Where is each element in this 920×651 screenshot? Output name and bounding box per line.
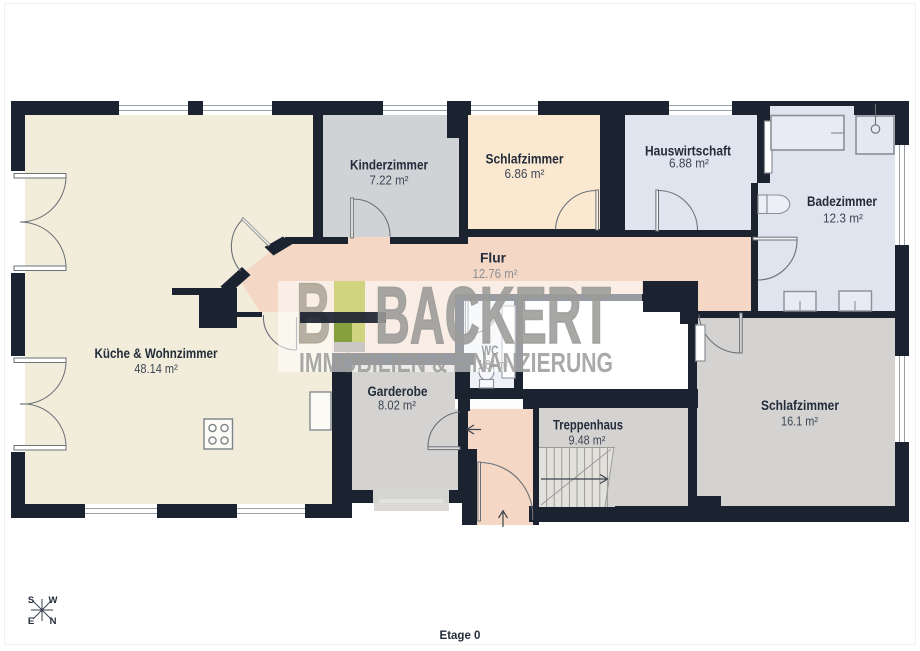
svg-text:IMMOBILIEN & FINANZIERUNG: IMMOBILIEN & FINANZIERUNG [299,347,613,378]
svg-text:Etage 0: Etage 0 [440,630,481,642]
svg-text:Flur: Flur [480,251,507,266]
svg-text:Badezimmer: Badezimmer [807,194,878,209]
svg-text:N: N [50,616,57,627]
svg-text:9.48 m²: 9.48 m² [569,434,606,448]
svg-text:6.86 m²: 6.86 m² [505,167,545,181]
svg-text:6.88 m²: 6.88 m² [669,157,709,171]
svg-text:16.1 m²: 16.1 m² [781,415,818,429]
svg-text:Schlafzimmer: Schlafzimmer [486,152,565,167]
svg-text:48.14 m²: 48.14 m² [134,362,178,376]
svg-text:Kinderzimmer: Kinderzimmer [350,158,429,173]
svg-text:Treppenhaus: Treppenhaus [553,418,623,433]
svg-text:8.02 m²: 8.02 m² [378,399,416,413]
svg-text:Garderobe: Garderobe [368,384,428,399]
svg-text:7.22 m²: 7.22 m² [370,174,409,188]
svg-text:12.3 m²: 12.3 m² [823,212,863,226]
svg-text:S: S [28,595,34,606]
svg-text:Küche & Wohnzimmer: Küche & Wohnzimmer [95,346,219,361]
svg-text:Schlafzimmer: Schlafzimmer [761,398,840,413]
svg-text:W: W [49,595,58,606]
svg-text:E: E [28,616,34,627]
